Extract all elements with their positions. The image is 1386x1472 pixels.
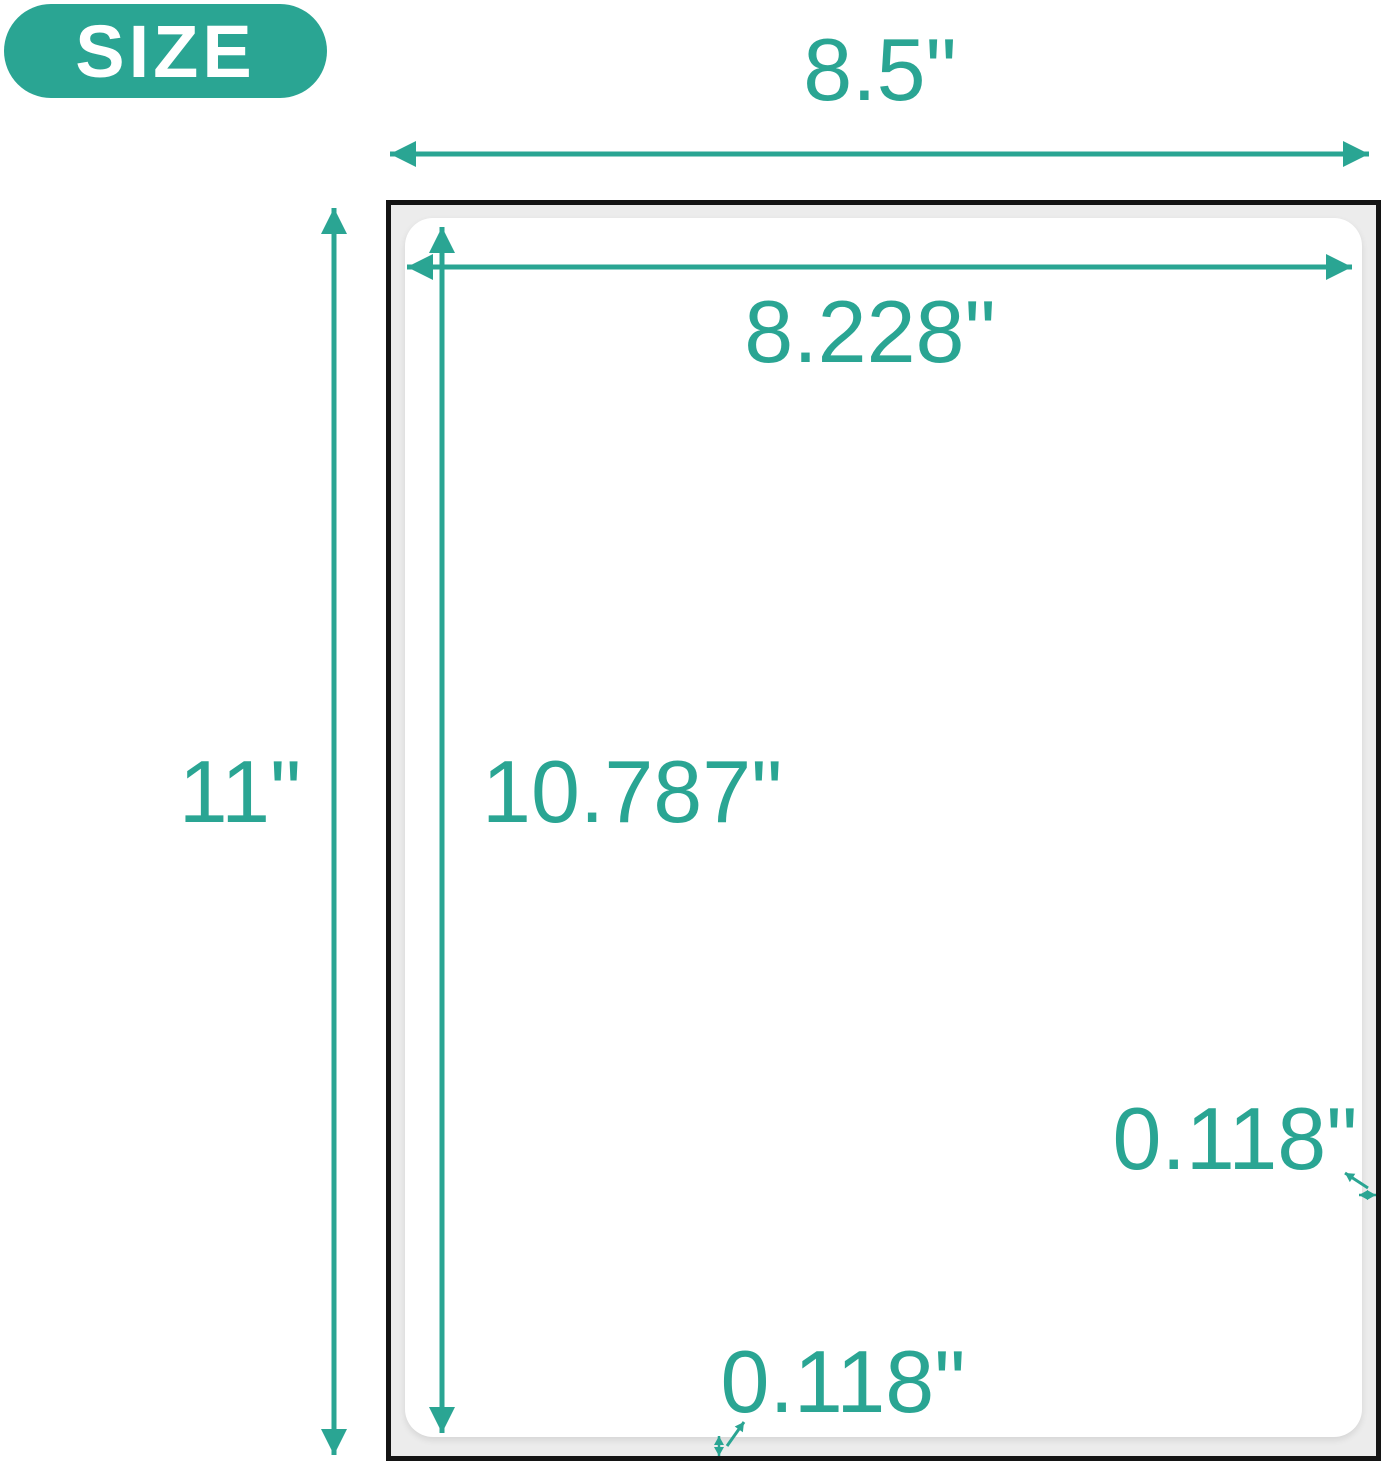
dimension-arrows bbox=[0, 0, 1386, 1472]
size-diagram: SIZE 8.5" 8.228" 11" 10.787" bbox=[0, 0, 1386, 1472]
sheet-height-label: 11" bbox=[90, 748, 390, 836]
bottom-margin-label: 0.118" bbox=[693, 1338, 993, 1426]
label-height-label: 10.787" bbox=[482, 748, 782, 836]
sheet-width-label: 8.5" bbox=[730, 26, 1030, 114]
right-margin-label: 0.118" bbox=[1085, 1095, 1385, 1183]
label-width-label: 8.228" bbox=[720, 288, 1020, 376]
